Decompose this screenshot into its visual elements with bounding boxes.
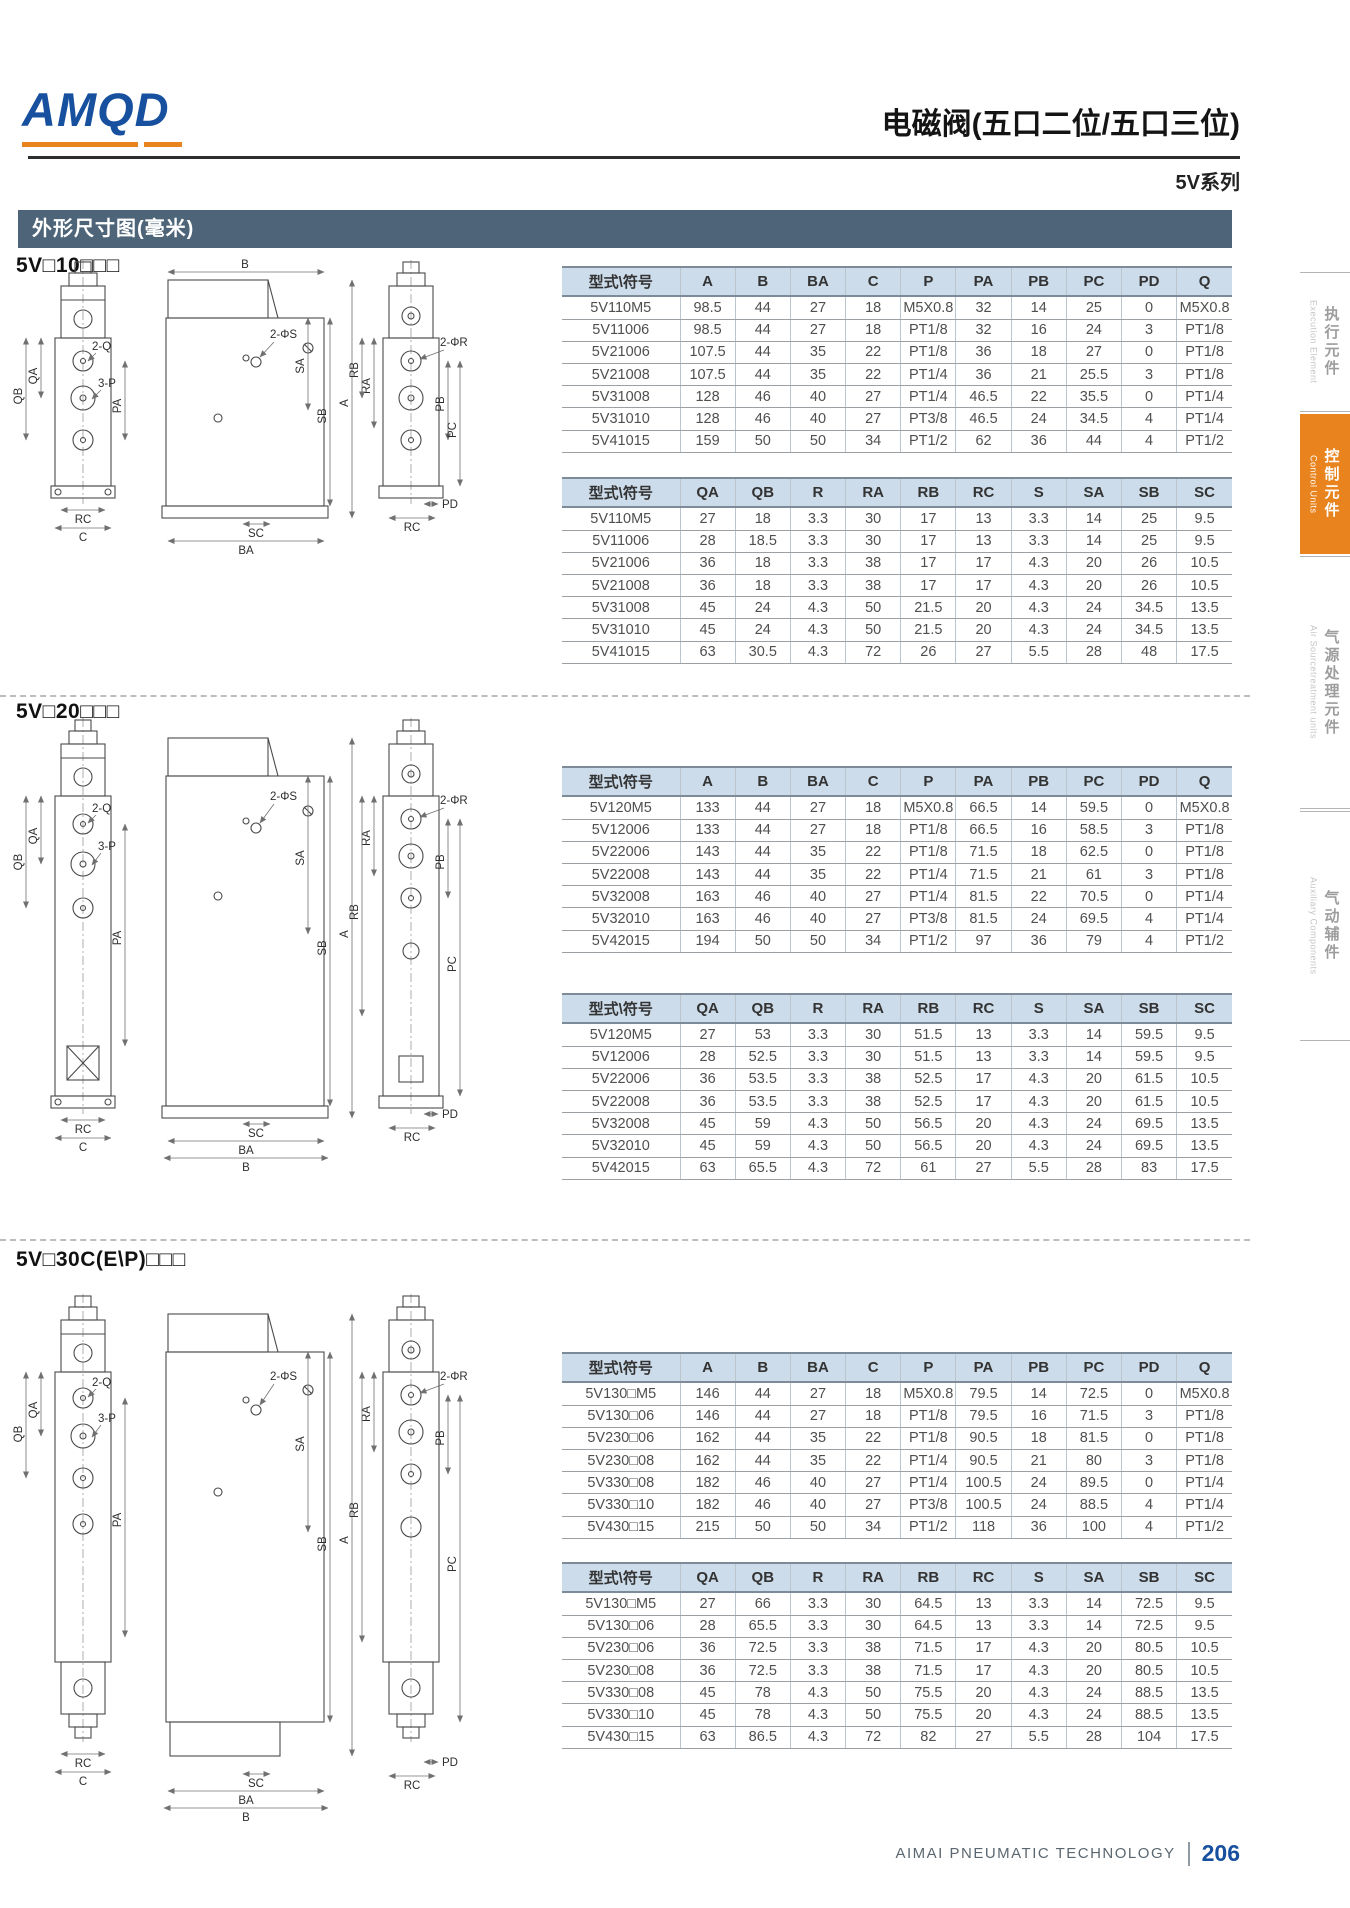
cell-value: 71.5 bbox=[956, 863, 1011, 885]
column-header: Q bbox=[1177, 767, 1232, 796]
catalog-page: AMQD 电磁阀(五口二位/五口三位) 5V系列 外形尺寸图(毫米) 5V□10… bbox=[0, 0, 1350, 1908]
cell-value: 3.3 bbox=[790, 1046, 845, 1068]
sidebar-tab-en-label: Execution Element bbox=[1309, 300, 1319, 384]
dim-label: PA bbox=[112, 1512, 124, 1527]
cell-value: 27 bbox=[846, 1472, 901, 1494]
cell-value: 146 bbox=[680, 1382, 735, 1405]
cell-value: 4 bbox=[1122, 408, 1177, 430]
cell-value: 50 bbox=[735, 1516, 790, 1538]
section-bar-title: 外形尺寸图(毫米) bbox=[18, 210, 1232, 248]
front-view: 2-Q 3-P QA QB PA RC C bbox=[13, 260, 125, 544]
column-header: RC bbox=[956, 994, 1011, 1023]
cell-value: 27 bbox=[790, 319, 845, 341]
cell-value: 27 bbox=[846, 886, 901, 908]
cell-value: 30 bbox=[846, 1592, 901, 1615]
cell-value: 50 bbox=[790, 1516, 845, 1538]
table-row: 5V12006133442718PT1/866.51658.53PT1/8 bbox=[562, 819, 1232, 841]
dim-label: 2-ΦS bbox=[270, 1371, 297, 1383]
cell-value: 3.3 bbox=[790, 552, 845, 574]
cell-value: 3.3 bbox=[790, 1659, 845, 1681]
column-header: RA bbox=[846, 994, 901, 1023]
dim-label: BA bbox=[238, 545, 254, 557]
cell-value: 20 bbox=[1066, 1637, 1121, 1659]
dim-label: 2-Q bbox=[92, 1377, 111, 1389]
cell-value: 4.3 bbox=[1011, 1090, 1066, 1112]
cell-value: 18 bbox=[846, 296, 901, 319]
table-row: 5V330□08182464027PT1/4100.52489.50PT1/4 bbox=[562, 1472, 1232, 1494]
cell-value: 71.5 bbox=[1066, 1405, 1121, 1427]
cell-value: 4.3 bbox=[1011, 1704, 1066, 1726]
cell-value: 28 bbox=[1066, 1157, 1121, 1179]
cell-value: 66.5 bbox=[956, 796, 1011, 819]
cell-value: PT1/8 bbox=[901, 341, 956, 363]
column-header: S bbox=[1011, 1563, 1066, 1592]
cell-value: 20 bbox=[956, 619, 1011, 641]
cell-value: 133 bbox=[680, 819, 735, 841]
cell-value: PT1/4 bbox=[1177, 408, 1232, 430]
cell-value: 22 bbox=[846, 1427, 901, 1449]
table-row: 5V230□083672.53.33871.5174.32080.510.5 bbox=[562, 1659, 1232, 1681]
cell-value: 82 bbox=[901, 1726, 956, 1748]
cell-value: 45 bbox=[680, 619, 735, 641]
cell-value: 59.5 bbox=[1122, 1046, 1177, 1068]
cell-value: 18.5 bbox=[735, 530, 790, 552]
cell-value: 66.5 bbox=[956, 819, 1011, 841]
cell-value: PT1/2 bbox=[1177, 930, 1232, 952]
cell-value: 13.5 bbox=[1177, 1682, 1232, 1704]
cell-value: PT1/4 bbox=[1177, 908, 1232, 930]
cell-value: 36 bbox=[956, 341, 1011, 363]
cell-value: 83 bbox=[1122, 1157, 1177, 1179]
cell-value: 27 bbox=[680, 507, 735, 530]
dim-label: RB bbox=[349, 904, 361, 920]
cell-value: 24 bbox=[1011, 908, 1066, 930]
dim-label: SC bbox=[248, 1128, 264, 1140]
dim-label: SB bbox=[317, 408, 329, 424]
sidebar-tab-auxiliary-components: Auxiliary Components 气动辅件 bbox=[1300, 811, 1350, 1041]
cell-value: 3.3 bbox=[1011, 1046, 1066, 1068]
page-footer: AIMAI PNEUMATIC TECHNOLOGY 206 bbox=[895, 1840, 1240, 1867]
cell-value: PT1/8 bbox=[1177, 841, 1232, 863]
cell-value: 18 bbox=[846, 796, 901, 819]
cell-value: 59.5 bbox=[1066, 796, 1121, 819]
side-view: B 2-ΦS SA SB A SC BA bbox=[162, 259, 352, 557]
cell-value: 24 bbox=[1066, 1682, 1121, 1704]
cell-value: 35 bbox=[790, 1427, 845, 1449]
column-header: 型式\符号 bbox=[562, 1353, 680, 1382]
cell-value: 28 bbox=[680, 1615, 735, 1637]
cell-value: 34 bbox=[846, 930, 901, 952]
cell-value: 27 bbox=[680, 1592, 735, 1615]
column-header: PD bbox=[1122, 267, 1177, 296]
sidebar-tab-en-label: Air Sourcetreatment units bbox=[1309, 625, 1319, 739]
cell-value: 20 bbox=[1066, 552, 1121, 574]
dim-label: BA bbox=[238, 1795, 254, 1807]
cell-value: 80.5 bbox=[1122, 1659, 1177, 1681]
cell-value: 9.5 bbox=[1177, 1592, 1232, 1615]
dim-label: PD bbox=[442, 499, 458, 511]
cell-value: 71.5 bbox=[956, 841, 1011, 863]
table-row: 5V230□063672.53.33871.5174.32080.510.5 bbox=[562, 1637, 1232, 1659]
brand-logo: AMQD bbox=[22, 86, 170, 133]
cell-value: 0 bbox=[1122, 1472, 1177, 1494]
cell-value: 18 bbox=[735, 574, 790, 596]
cell-value: 26 bbox=[1122, 574, 1177, 596]
cell-value: 65.5 bbox=[735, 1615, 790, 1637]
cell-value: 50 bbox=[846, 1704, 901, 1726]
dim-label: PC bbox=[447, 1556, 459, 1572]
cell-value: 27 bbox=[956, 1157, 1011, 1179]
cell-value: 98.5 bbox=[680, 296, 735, 319]
table-row: 5V2100836183.33817174.3202610.5 bbox=[562, 574, 1232, 596]
column-header: R bbox=[790, 994, 845, 1023]
cell-model: 5V230□08 bbox=[562, 1449, 680, 1471]
dim-label: B bbox=[242, 1812, 250, 1824]
cell-value: PT1/8 bbox=[1177, 363, 1232, 385]
cell-value: PT1/4 bbox=[901, 1472, 956, 1494]
cell-value: 104 bbox=[1122, 1726, 1177, 1748]
cell-value: 44 bbox=[735, 863, 790, 885]
cell-value: 66 bbox=[735, 1592, 790, 1615]
cell-value: 194 bbox=[680, 930, 735, 952]
cell-value: M5X0.8 bbox=[901, 296, 956, 319]
cell-value: 0 bbox=[1122, 841, 1177, 863]
cell-value: 28 bbox=[1066, 1726, 1121, 1748]
section-label-5v30: 5V□30C(E\P)□□□ bbox=[16, 1248, 186, 1272]
cell-value: 45 bbox=[680, 1135, 735, 1157]
column-header: RC bbox=[956, 1563, 1011, 1592]
dim-label: B bbox=[242, 1162, 250, 1174]
cell-value: 72 bbox=[846, 1157, 901, 1179]
cell-value: 24 bbox=[1066, 1704, 1121, 1726]
cell-value: 4.3 bbox=[790, 619, 845, 641]
cell-value: 53.5 bbox=[735, 1068, 790, 1090]
cell-value: 22 bbox=[1011, 886, 1066, 908]
cell-value: 3.3 bbox=[790, 1090, 845, 1112]
cell-value: 3.3 bbox=[790, 507, 845, 530]
cell-value: 21 bbox=[1011, 863, 1066, 885]
cell-value: 4.3 bbox=[1011, 1637, 1066, 1659]
cell-model: 5V21006 bbox=[562, 552, 680, 574]
drawing-5v10: 2-Q 3-P QA QB PA RC C B 2-ΦS bbox=[8, 258, 488, 588]
cell-value: 30.5 bbox=[735, 641, 790, 663]
cell-value: PT1/4 bbox=[901, 886, 956, 908]
column-header: A bbox=[680, 767, 735, 796]
table-5v30-sub: 型式\符号QAQBRRARBRCSSASBSC5V130□M527663.330… bbox=[562, 1562, 1232, 1749]
cell-value: 50 bbox=[846, 1682, 901, 1704]
cell-value: PT1/2 bbox=[901, 1516, 956, 1538]
cell-model: 5V110M5 bbox=[562, 296, 680, 319]
column-header: A bbox=[680, 267, 735, 296]
drawing-5v30: 2-Q 3-P QA QB PA RC C 2-ΦS SA bbox=[8, 1292, 488, 1837]
cell-value: 20 bbox=[956, 1113, 1011, 1135]
cell-value: 17 bbox=[901, 574, 956, 596]
column-header: Q bbox=[1177, 267, 1232, 296]
cell-value: 162 bbox=[680, 1427, 735, 1449]
cell-value: 35.5 bbox=[1066, 386, 1121, 408]
cell-value: 13.5 bbox=[1177, 1113, 1232, 1135]
cell-value: PT1/8 bbox=[901, 841, 956, 863]
cell-value: 4.3 bbox=[1011, 1135, 1066, 1157]
cell-value: 63 bbox=[680, 641, 735, 663]
table-row: 5V3100845244.35021.5204.32434.513.5 bbox=[562, 597, 1232, 619]
column-header: QA bbox=[680, 994, 735, 1023]
cell-value: 9.5 bbox=[1177, 1615, 1232, 1637]
cell-value: 3.3 bbox=[790, 1068, 845, 1090]
cell-value: 3.3 bbox=[790, 574, 845, 596]
cell-value: PT1/2 bbox=[901, 430, 956, 452]
cell-value: 56.5 bbox=[901, 1113, 956, 1135]
cell-value: PT1/4 bbox=[901, 363, 956, 385]
cell-value: 79.5 bbox=[956, 1382, 1011, 1405]
cell-value: 69.5 bbox=[1122, 1113, 1177, 1135]
cell-value: 163 bbox=[680, 886, 735, 908]
cell-value: 62.5 bbox=[1066, 841, 1121, 863]
column-header: RB bbox=[901, 478, 956, 507]
dim-label: 2-ΦS bbox=[270, 329, 297, 341]
cell-value: PT1/2 bbox=[901, 930, 956, 952]
column-header: RA bbox=[846, 1563, 901, 1592]
cell-value: 14 bbox=[1011, 796, 1066, 819]
cell-value: 13 bbox=[956, 530, 1011, 552]
cell-value: 3.3 bbox=[1011, 1592, 1066, 1615]
column-header: PA bbox=[956, 267, 1011, 296]
cell-value: M5X0.8 bbox=[1177, 1382, 1232, 1405]
cell-value: 3.3 bbox=[1011, 507, 1066, 530]
cell-value: 28 bbox=[680, 530, 735, 552]
cell-value: 46.5 bbox=[956, 408, 1011, 430]
cell-value: 46 bbox=[735, 386, 790, 408]
cell-value: 118 bbox=[956, 1516, 1011, 1538]
cell-value: 98.5 bbox=[680, 319, 735, 341]
cell-value: 72 bbox=[846, 641, 901, 663]
cell-value: 44 bbox=[1066, 430, 1121, 452]
column-header: BA bbox=[790, 267, 845, 296]
cell-value: 0 bbox=[1122, 296, 1177, 319]
cell-value: 89.5 bbox=[1066, 1472, 1121, 1494]
cell-value: 14 bbox=[1066, 1046, 1121, 1068]
cell-value: 35 bbox=[790, 1449, 845, 1471]
dim-label: A bbox=[339, 930, 351, 938]
dim-label: QA bbox=[28, 1401, 40, 1418]
cell-value: 17 bbox=[901, 507, 956, 530]
dim-label: RC bbox=[404, 522, 421, 534]
cell-value: 24 bbox=[1011, 408, 1066, 430]
cell-value: 17 bbox=[956, 1068, 1011, 1090]
column-header: SA bbox=[1066, 1563, 1121, 1592]
cell-value: 17 bbox=[956, 1637, 1011, 1659]
cell-value: 4.3 bbox=[790, 597, 845, 619]
cell-value: 17.5 bbox=[1177, 641, 1232, 663]
cell-value: 4.3 bbox=[790, 1157, 845, 1179]
column-header: PA bbox=[956, 767, 1011, 796]
table-row: 5V130□M5146442718M5X0.879.51472.50M5X0.8 bbox=[562, 1382, 1232, 1405]
sidebar-tab-cn-label: 气动辅件 bbox=[1321, 890, 1342, 962]
cell-value: 70.5 bbox=[1066, 886, 1121, 908]
dim-label: B bbox=[241, 259, 249, 271]
cell-value: 10.5 bbox=[1177, 1637, 1232, 1659]
table-row: 5V2100636183.33817174.3202610.5 bbox=[562, 552, 1232, 574]
cell-value: 38 bbox=[846, 1090, 901, 1112]
cell-value: 163 bbox=[680, 908, 735, 930]
cell-value: 14 bbox=[1066, 1592, 1121, 1615]
cell-value: 13.5 bbox=[1177, 597, 1232, 619]
dim-label: A bbox=[339, 399, 351, 407]
cell-model: 5V21008 bbox=[562, 363, 680, 385]
dim-label: C bbox=[79, 532, 87, 544]
section-divider-2 bbox=[0, 1239, 1250, 1241]
cell-value: 3.3 bbox=[790, 530, 845, 552]
cell-value: 36 bbox=[956, 363, 1011, 385]
dim-label: RB bbox=[349, 1502, 361, 1518]
cell-value: 28 bbox=[1066, 641, 1121, 663]
cell-value: 4 bbox=[1122, 430, 1177, 452]
cell-value: 22 bbox=[846, 863, 901, 885]
cell-value: 61 bbox=[901, 1157, 956, 1179]
cell-model: 5V22006 bbox=[562, 1068, 680, 1090]
cell-value: 20 bbox=[956, 1135, 1011, 1157]
cell-value: 48 bbox=[1122, 641, 1177, 663]
column-header: BA bbox=[790, 767, 845, 796]
cell-value: 24 bbox=[1066, 1135, 1121, 1157]
cell-value: 4.3 bbox=[1011, 1068, 1066, 1090]
cell-value: PT1/4 bbox=[901, 386, 956, 408]
table-row: 5V420156365.54.37261275.5288317.5 bbox=[562, 1157, 1232, 1179]
cell-value: 40 bbox=[790, 1472, 845, 1494]
cell-value: 13 bbox=[956, 507, 1011, 530]
table-row: 5V110M598.5442718M5X0.83214250M5X0.8 bbox=[562, 296, 1232, 319]
cell-value: 18 bbox=[735, 507, 790, 530]
cell-value: 88.5 bbox=[1066, 1494, 1121, 1516]
dim-label: RA bbox=[361, 378, 373, 394]
cell-value: 4.3 bbox=[790, 1726, 845, 1748]
column-header: 型式\符号 bbox=[562, 767, 680, 796]
cell-value: PT3/8 bbox=[901, 908, 956, 930]
cell-value: 81.5 bbox=[956, 886, 1011, 908]
cell-value: 46 bbox=[735, 408, 790, 430]
cell-value: 58.5 bbox=[1066, 819, 1121, 841]
cell-model: 5V130□06 bbox=[562, 1405, 680, 1427]
dim-label: PB bbox=[435, 396, 447, 412]
table-row: 5V230□08162443522PT1/490.521803PT1/8 bbox=[562, 1449, 1232, 1471]
column-header: R bbox=[790, 1563, 845, 1592]
cell-value: 24 bbox=[735, 597, 790, 619]
logo-underline bbox=[22, 142, 138, 147]
column-header: 型式\符号 bbox=[562, 994, 680, 1023]
cell-value: 90.5 bbox=[956, 1427, 1011, 1449]
cell-value: 44 bbox=[735, 796, 790, 819]
cell-value: 100.5 bbox=[956, 1472, 1011, 1494]
cell-value: 44 bbox=[735, 296, 790, 319]
cell-value: 27 bbox=[846, 908, 901, 930]
cell-value: 20 bbox=[1066, 1090, 1121, 1112]
cell-value: 17.5 bbox=[1177, 1157, 1232, 1179]
cell-model: 5V120M5 bbox=[562, 1023, 680, 1046]
cell-value: 17.5 bbox=[1177, 1726, 1232, 1748]
dim-label: BA bbox=[238, 1145, 254, 1157]
cell-value: 20 bbox=[1066, 574, 1121, 596]
column-header: PC bbox=[1066, 267, 1121, 296]
cell-value: 18 bbox=[846, 1405, 901, 1427]
cell-model: 5V330□10 bbox=[562, 1704, 680, 1726]
cell-value: 72.5 bbox=[735, 1659, 790, 1681]
header-row: 型式\符号QAQBRRARBRCSSASBSC bbox=[562, 1563, 1232, 1592]
cell-value: 22 bbox=[846, 1449, 901, 1471]
cell-value: 46 bbox=[735, 1494, 790, 1516]
cell-value: 18 bbox=[735, 552, 790, 574]
cell-value: 3.3 bbox=[1011, 1615, 1066, 1637]
cell-value: 100 bbox=[1066, 1516, 1121, 1538]
cell-value: 20 bbox=[1066, 1068, 1121, 1090]
column-header: PC bbox=[1066, 1353, 1121, 1382]
dim-label: QB bbox=[13, 387, 25, 404]
cell-value: 34.5 bbox=[1122, 597, 1177, 619]
column-header: PB bbox=[1011, 1353, 1066, 1382]
cell-value: 44 bbox=[735, 319, 790, 341]
column-header: PA bbox=[956, 1353, 1011, 1382]
cell-value: 72 bbox=[846, 1726, 901, 1748]
column-header: SA bbox=[1066, 478, 1121, 507]
drawing-5v20: 2-Q 3-P QA QB PA RC C 2-ΦS SA bbox=[8, 716, 488, 1236]
cell-value: 0 bbox=[1122, 1382, 1177, 1405]
table-row: 5V430□15215505034PT1/2118361004PT1/2 bbox=[562, 1516, 1232, 1538]
cell-value: M5X0.8 bbox=[901, 1382, 956, 1405]
cell-value: 14 bbox=[1066, 1615, 1121, 1637]
cell-value: 215 bbox=[680, 1516, 735, 1538]
cell-model: 5V110M5 bbox=[562, 507, 680, 530]
cell-value: 13.5 bbox=[1177, 1135, 1232, 1157]
cell-value: 3 bbox=[1122, 319, 1177, 341]
cell-value: 143 bbox=[680, 841, 735, 863]
cell-value: 75.5 bbox=[901, 1704, 956, 1726]
cell-value: 80 bbox=[1066, 1449, 1121, 1471]
dim-label: PA bbox=[112, 398, 124, 413]
column-header: P bbox=[901, 767, 956, 796]
cell-value: 14 bbox=[1011, 296, 1066, 319]
dim-label: QB bbox=[13, 1425, 25, 1442]
cell-model: 5V21008 bbox=[562, 574, 680, 596]
cell-value: 44 bbox=[735, 841, 790, 863]
cell-value: 25 bbox=[1066, 296, 1121, 319]
dim-label: RC bbox=[404, 1132, 421, 1144]
cell-value: 3.3 bbox=[1011, 530, 1066, 552]
cell-value: 27 bbox=[1066, 341, 1121, 363]
cell-value: 21.5 bbox=[901, 619, 956, 641]
cell-value: 69.5 bbox=[1066, 908, 1121, 930]
footer-divider bbox=[1188, 1842, 1190, 1866]
cell-value: 40 bbox=[790, 386, 845, 408]
cell-value: M5X0.8 bbox=[901, 796, 956, 819]
cell-value: 44 bbox=[735, 1405, 790, 1427]
cell-value: 63 bbox=[680, 1157, 735, 1179]
column-header: QA bbox=[680, 478, 735, 507]
cell-value: 50 bbox=[790, 430, 845, 452]
cell-value: 17 bbox=[956, 1659, 1011, 1681]
dim-label: 2-Q bbox=[92, 341, 111, 353]
cell-value: 34.5 bbox=[1066, 408, 1121, 430]
dim-label: 3-P bbox=[98, 1413, 116, 1425]
cell-value: 36 bbox=[1011, 1516, 1066, 1538]
cell-value: 128 bbox=[680, 408, 735, 430]
column-header: QA bbox=[680, 1563, 735, 1592]
cell-value: 14 bbox=[1011, 1382, 1066, 1405]
dim-label: PD bbox=[442, 1109, 458, 1121]
sidebar-tab-control-units: Control Units 控制元件 bbox=[1300, 414, 1350, 554]
column-header: SB bbox=[1122, 478, 1177, 507]
cell-value: 36 bbox=[680, 1090, 735, 1112]
cell-value: 56.5 bbox=[901, 1135, 956, 1157]
cell-value: 44 bbox=[735, 819, 790, 841]
